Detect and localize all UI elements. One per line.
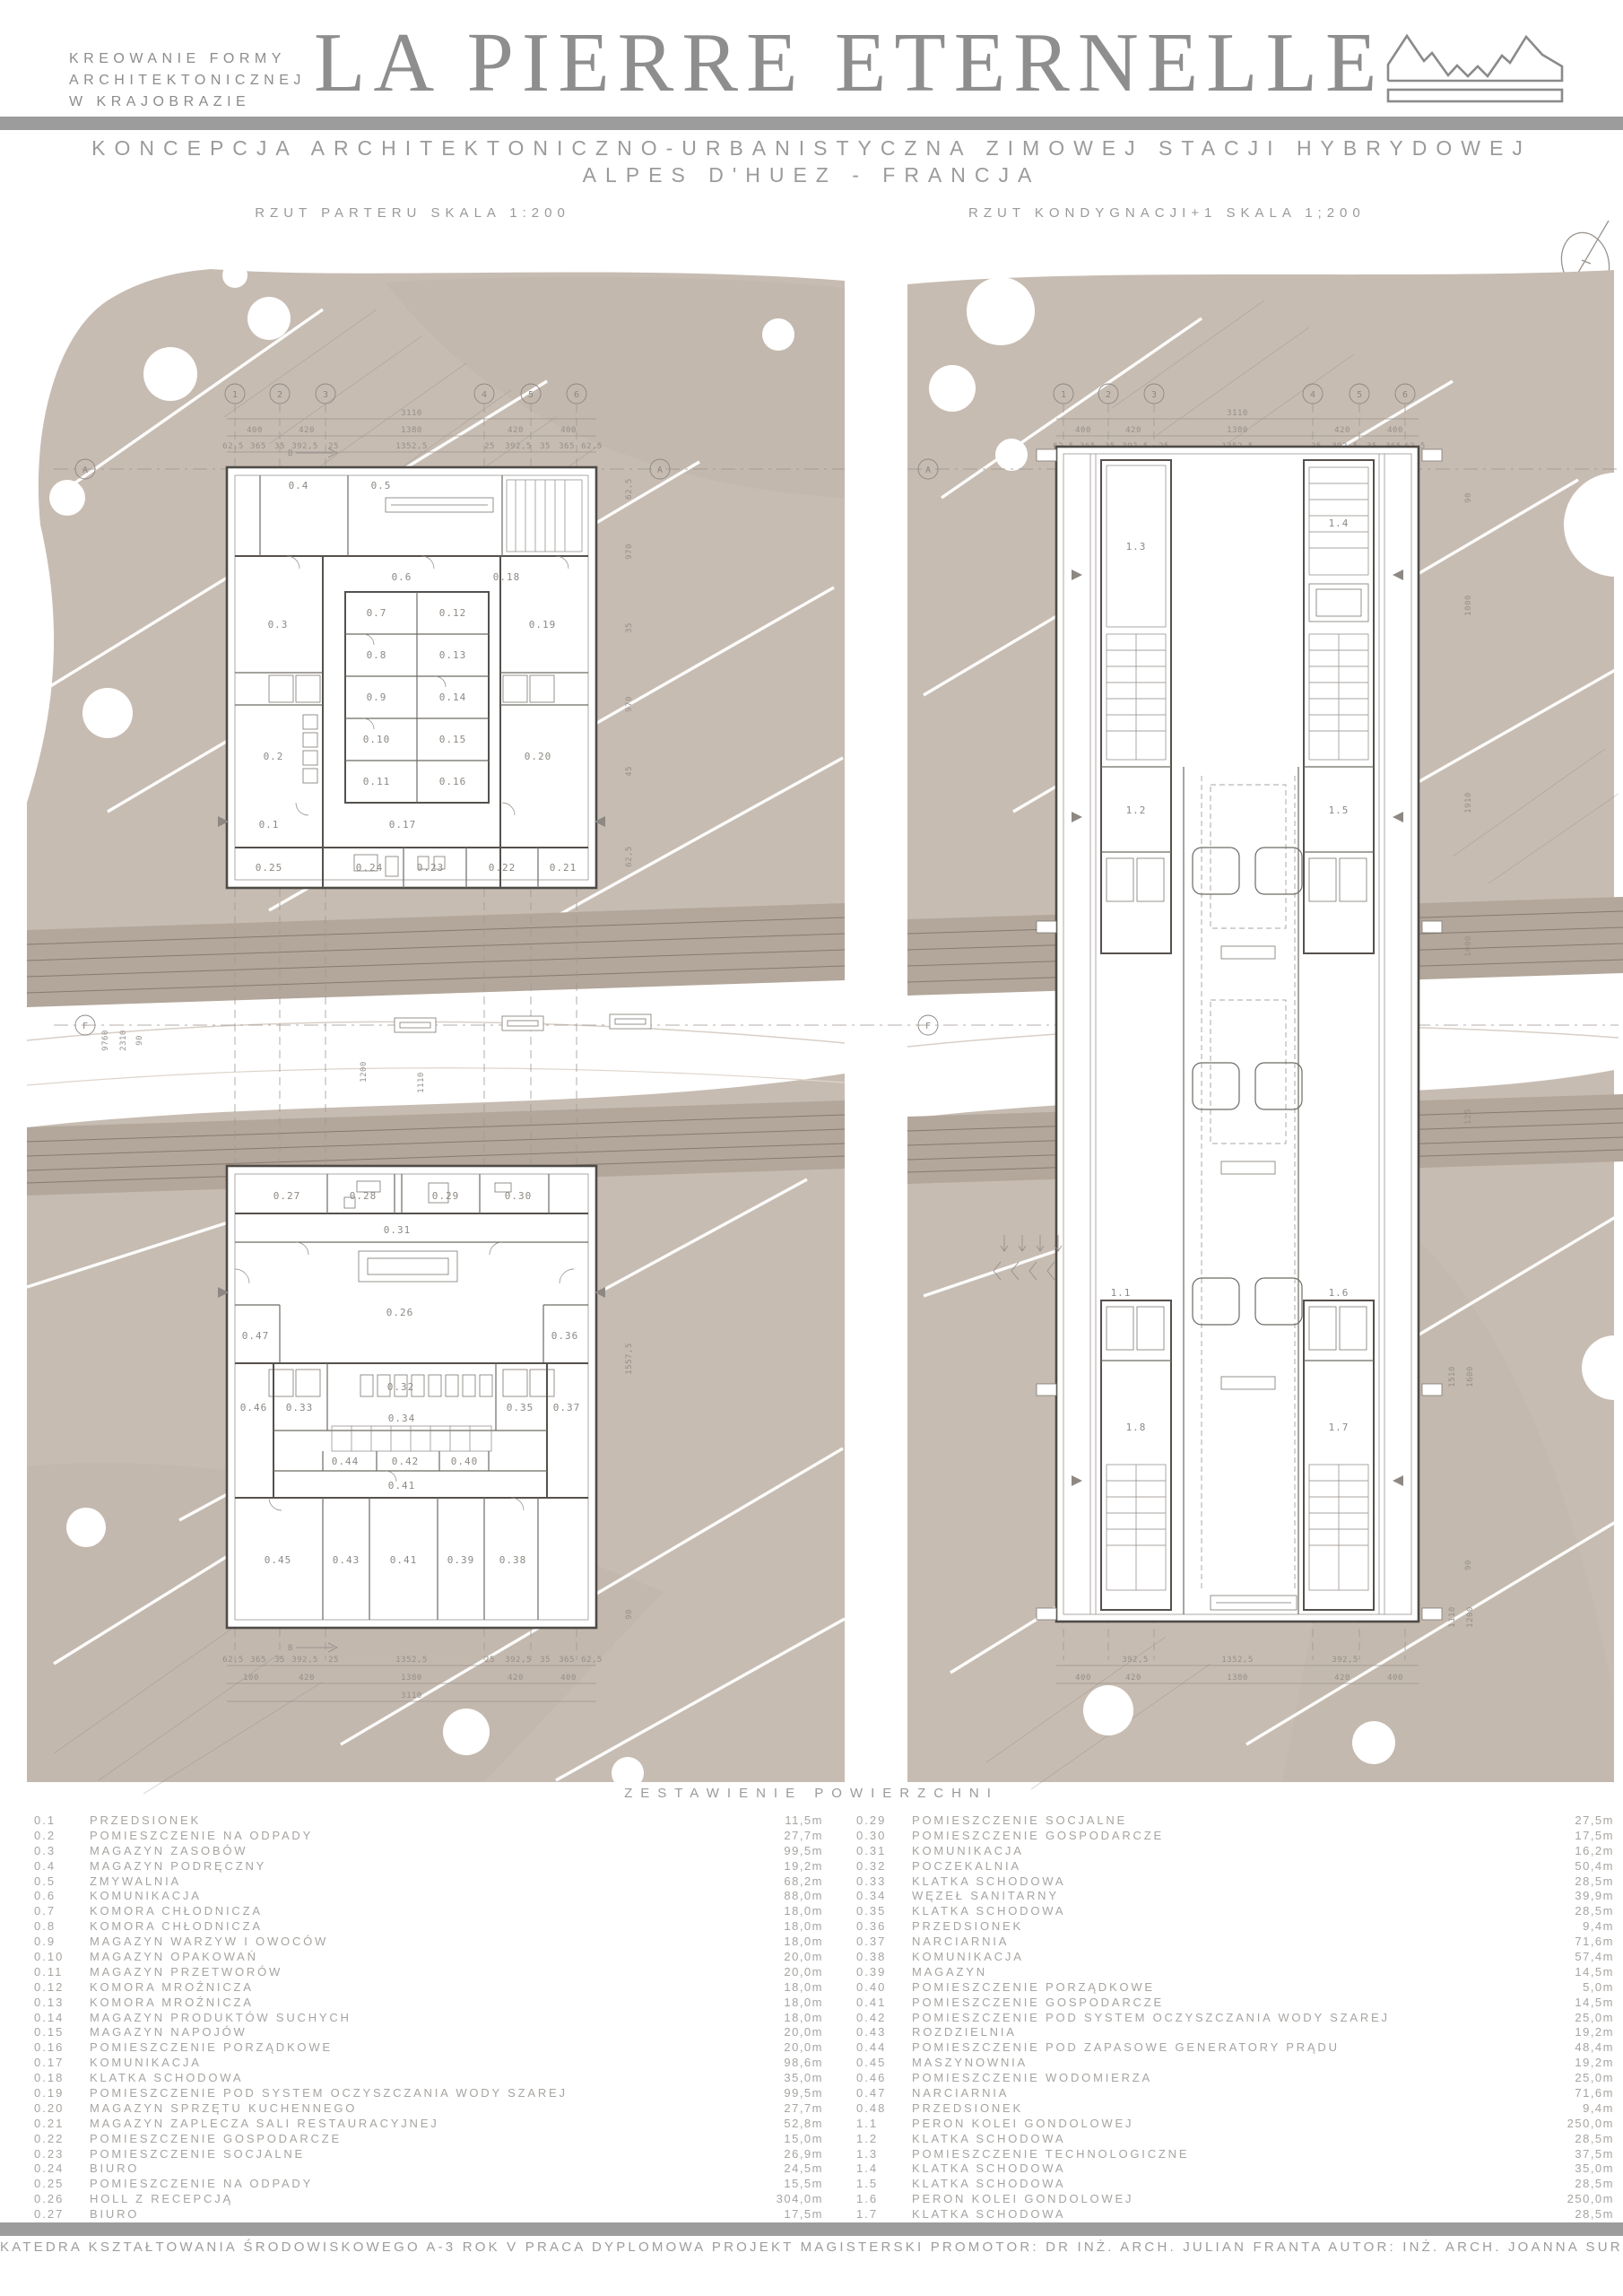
svg-text:125: 125 bbox=[1464, 1109, 1473, 1125]
svg-text:420: 420 bbox=[299, 426, 315, 435]
svg-text:420: 420 bbox=[1334, 1674, 1350, 1683]
room-number: 0.7 bbox=[34, 1904, 90, 1919]
room-number: 1.3 bbox=[856, 2147, 912, 2162]
room-name: MAGAZYN NAPOJÓW bbox=[90, 2025, 742, 2040]
room-name: PERON KOLEI GONDOLOWEJ bbox=[912, 2117, 1533, 2132]
svg-text:392,5: 392,5 bbox=[1122, 1656, 1149, 1665]
room-label: 0.41 bbox=[390, 1554, 418, 1566]
room-number: 1.6 bbox=[856, 2192, 912, 2207]
room-name: POMIESZCZENIE PORZĄDKOWE bbox=[90, 2040, 742, 2056]
room-label: 0.15 bbox=[439, 734, 467, 745]
area-row: 0.29 POMIESZCZENIE SOCJALNE 27,5m bbox=[856, 1813, 1614, 1829]
area-row: 0.40 POMIESZCZENIE PORZĄDKOWE 5,0m bbox=[856, 1980, 1614, 1996]
room-name: KLATKA SCHODOWA bbox=[912, 2132, 1533, 2147]
room-name: KLATKA SCHODOWA bbox=[912, 2207, 1533, 2222]
room-name: ROZDZIELNIA bbox=[912, 2025, 1533, 2040]
room-label: 1.8 bbox=[1126, 1422, 1147, 1433]
room-label: 0.29 bbox=[432, 1190, 460, 1202]
svg-text:35: 35 bbox=[540, 1656, 551, 1665]
svg-text:1510: 1510 bbox=[1448, 1366, 1457, 1387]
svg-text:1352,5: 1352,5 bbox=[1221, 1656, 1254, 1665]
area-row: 0.20 MAGAZYN SPRZĘTU KUCHENNEGO 27,7m bbox=[34, 2101, 823, 2117]
room-number: 0.16 bbox=[34, 2040, 90, 2056]
room-area: 304,0m bbox=[742, 2192, 823, 2207]
room-label: 0.38 bbox=[499, 1554, 527, 1566]
room-label: 0.40 bbox=[451, 1456, 479, 1467]
room-number: 0.24 bbox=[34, 2161, 90, 2177]
room-number: 0.40 bbox=[856, 1980, 912, 1996]
room-name: KOMUNIKACJA bbox=[912, 1950, 1533, 1965]
room-label: 0.35 bbox=[507, 1402, 534, 1413]
svg-text:1000: 1000 bbox=[1464, 595, 1473, 616]
footer-divider-bar bbox=[0, 2222, 1623, 2236]
area-row: 0.32 POCZEKALNIA 50,4m bbox=[856, 1859, 1614, 1874]
left-plan-lower-block: 0.27 0.28 0.29 0.30 0.31 0.26 0.47 0.36 … bbox=[218, 1166, 605, 1628]
area-row: 0.19 POMIESZCZENIE POD SYSTEM OCZYSZCZAN… bbox=[34, 2086, 823, 2101]
room-label: 0.3 bbox=[268, 619, 289, 631]
svg-text:45: 45 bbox=[625, 766, 634, 777]
room-number: 0.27 bbox=[34, 2207, 90, 2222]
room-number: 0.43 bbox=[856, 2025, 912, 2040]
room-area: 17,5m bbox=[742, 2207, 823, 2222]
room-label: 0.43 bbox=[333, 1554, 360, 1566]
room-name: BIURO bbox=[90, 2207, 742, 2222]
room-area: 28,5m bbox=[1533, 1874, 1614, 1890]
svg-text:1110: 1110 bbox=[1448, 1606, 1457, 1628]
svg-text:2: 2 bbox=[277, 390, 282, 400]
room-number: 1.4 bbox=[856, 2161, 912, 2177]
svg-text:35: 35 bbox=[625, 622, 634, 633]
room-area: 18,0m bbox=[742, 1980, 823, 1996]
svg-text:1352,5: 1352,5 bbox=[395, 1656, 428, 1665]
svg-text:1380: 1380 bbox=[1227, 426, 1248, 435]
area-row: 0.8 KOMORA CHŁODNICZA 18,0m bbox=[34, 1919, 823, 1935]
area-row: 0.25 POMIESZCZENIE NA ODPADY 15,5m bbox=[34, 2177, 823, 2192]
room-number: 0.32 bbox=[856, 1859, 912, 1874]
room-number: 0.44 bbox=[856, 2040, 912, 2056]
room-label: 0.1 bbox=[259, 819, 280, 831]
room-name: KOMORA MROŹNICZA bbox=[90, 1996, 742, 2011]
room-number: 0.34 bbox=[856, 1889, 912, 1904]
room-area: 52,8m bbox=[742, 2117, 823, 2132]
svg-text:420: 420 bbox=[1125, 426, 1141, 435]
room-label: 0.14 bbox=[439, 691, 467, 703]
header-divider-bar bbox=[0, 117, 1623, 130]
room-name: HOLL Z RECEPCJĄ bbox=[90, 2192, 742, 2207]
room-name: NARCIARNIA bbox=[912, 2086, 1533, 2101]
room-label: 0.26 bbox=[386, 1307, 414, 1318]
room-label: 0.46 bbox=[240, 1402, 268, 1413]
room-label: 0.32 bbox=[387, 1381, 415, 1393]
room-area: 48,4m bbox=[1533, 2040, 1614, 2056]
svg-text:1200: 1200 bbox=[360, 1061, 369, 1083]
right-plan-label: RZUT KONDYGNACJI+1 SKALA 1;200 bbox=[968, 205, 1363, 221]
room-name: POMIESZCZENIE POD SYSTEM OCZYSZCZANIA WO… bbox=[90, 2086, 742, 2101]
room-area: 39,9m bbox=[1533, 1889, 1614, 1904]
svg-text:6: 6 bbox=[1402, 390, 1408, 400]
svg-text:100: 100 bbox=[243, 1674, 259, 1683]
room-name: KOMUNIKACJA bbox=[912, 1844, 1533, 1859]
tagline-line-3: W KRAJOBRAZIE bbox=[69, 91, 306, 113]
svg-text:400: 400 bbox=[1387, 1674, 1403, 1683]
svg-text:B: B bbox=[288, 449, 293, 458]
room-number: 0.23 bbox=[34, 2147, 90, 2162]
room-label: 1.2 bbox=[1126, 804, 1147, 816]
area-row: 0.4 MAGAZYN PODRĘCZNY 19,2m bbox=[34, 1859, 823, 1874]
svg-text:5: 5 bbox=[1357, 390, 1362, 400]
room-label: 0.8 bbox=[367, 649, 387, 661]
svg-text:5: 5 bbox=[528, 390, 534, 400]
room-label: 0.20 bbox=[525, 751, 552, 762]
area-row: 0.37 NARCIARNIA 71,6m bbox=[856, 1935, 1614, 1950]
room-area: 27,7m bbox=[742, 2101, 823, 2117]
room-label: 1.6 bbox=[1329, 1287, 1350, 1299]
svg-text:62,5: 62,5 bbox=[222, 1656, 244, 1665]
room-name: NARCIARNIA bbox=[912, 1935, 1533, 1950]
room-area: 19,2m bbox=[742, 1859, 823, 1874]
room-label: 1.1 bbox=[1111, 1287, 1132, 1299]
room-area: 18,0m bbox=[742, 1919, 823, 1935]
room-number: 1.7 bbox=[856, 2207, 912, 2222]
room-name: MAGAZYN PRODUKTÓW SUCHYCH bbox=[90, 2011, 742, 2026]
area-row: 1.1 PERON KOLEI GONDOLOWEJ 250,0m bbox=[856, 2117, 1614, 2132]
room-label: 0.7 bbox=[367, 607, 387, 619]
area-row: 0.15 MAGAZYN NAPOJÓW 20,0m bbox=[34, 2025, 823, 2040]
room-name: POMIESZCZENIE SOCJALNE bbox=[90, 2147, 742, 2162]
room-number: 0.29 bbox=[856, 1813, 912, 1829]
room-number: 0.35 bbox=[856, 1904, 912, 1919]
room-name: KLATKA SCHODOWA bbox=[90, 2071, 742, 2086]
areas-column-right: 0.29 POMIESZCZENIE SOCJALNE 27,5m 0.30 P… bbox=[856, 1813, 1614, 2238]
areas-heading: ZESTAWIENIE POWIERZCHNI bbox=[0, 1786, 1623, 1801]
room-name: MAGAZYN PRZETWORÓW bbox=[90, 1965, 742, 1980]
area-row: 0.42 POMIESZCZENIE POD SYSTEM OCZYSZCZAN… bbox=[856, 2011, 1614, 2026]
tagline-line-1: KREOWANIE FORMY bbox=[69, 48, 306, 70]
svg-text:62,5: 62,5 bbox=[581, 442, 603, 451]
area-row: 0.16 POMIESZCZENIE PORZĄDKOWE 20,0m bbox=[34, 2040, 823, 2056]
svg-text:392,5: 392,5 bbox=[1332, 1656, 1358, 1665]
svg-text:1910: 1910 bbox=[1464, 792, 1473, 813]
room-label: 0.45 bbox=[265, 1554, 292, 1566]
room-number: 0.4 bbox=[34, 1859, 90, 1874]
room-number: 0.19 bbox=[34, 2086, 90, 2101]
room-label: 0.12 bbox=[439, 607, 467, 619]
room-name: KOMORA CHŁODNICZA bbox=[90, 1919, 742, 1935]
area-row: 1.5 KLATKA SCHODOWA 28,5m bbox=[856, 2177, 1614, 2192]
room-label: 1.4 bbox=[1329, 517, 1350, 529]
room-area: 88,0m bbox=[742, 1889, 823, 1904]
room-number: 0.14 bbox=[34, 2011, 90, 2026]
area-row: 1.2 KLATKA SCHODOWA 28,5m bbox=[856, 2132, 1614, 2147]
svg-text:392,5: 392,5 bbox=[291, 442, 318, 451]
svg-text:62,5: 62,5 bbox=[222, 442, 244, 451]
room-label: 0.5 bbox=[371, 480, 392, 491]
svg-text:3: 3 bbox=[1151, 390, 1157, 400]
svg-text:B: B bbox=[288, 1644, 293, 1653]
room-area: 28,5m bbox=[1533, 2177, 1614, 2192]
svg-text:1600: 1600 bbox=[1466, 1366, 1475, 1387]
area-row: 0.14 MAGAZYN PRODUKTÓW SUCHYCH 18,0m bbox=[34, 2011, 823, 2026]
area-row: 0.36 PRZEDSIONEK 9,4m bbox=[856, 1919, 1614, 1935]
area-row: 0.1 PRZEDSIONEK 11,5m bbox=[34, 1813, 823, 1829]
room-label: 0.36 bbox=[551, 1330, 579, 1342]
room-area: 27,5m bbox=[1533, 1813, 1614, 1829]
area-row: 0.11 MAGAZYN PRZETWORÓW 20,0m bbox=[34, 1965, 823, 1980]
room-number: 0.10 bbox=[34, 1950, 90, 1965]
area-row: 0.38 KOMUNIKACJA 57,4m bbox=[856, 1950, 1614, 1965]
room-label: 0.42 bbox=[392, 1456, 420, 1467]
room-area: 14,5m bbox=[1533, 1996, 1614, 2011]
room-area: 28,5m bbox=[1533, 2207, 1614, 2222]
svg-text:62,5: 62,5 bbox=[625, 846, 634, 867]
svg-text:2: 2 bbox=[1106, 390, 1111, 400]
room-number: 0.6 bbox=[34, 1889, 90, 1904]
area-row: 0.33 KLATKA SCHODOWA 28,5m bbox=[856, 1874, 1614, 1890]
room-label: 0.16 bbox=[439, 776, 467, 787]
svg-text:3110: 3110 bbox=[401, 409, 422, 418]
footer-credits: KATEDRA KSZTAŁTOWANIA ŚRODOWISKOWEGO A-3… bbox=[0, 2239, 1623, 2255]
room-area: 11,5m bbox=[742, 1813, 823, 1829]
room-area: 19,2m bbox=[1533, 2025, 1614, 2040]
svg-text:1: 1 bbox=[1061, 390, 1066, 400]
area-row: 0.46 POMIESZCZENIE WODOMIERZA 25,0m bbox=[856, 2071, 1614, 2086]
area-row: 0.9 MAGAZYN WARZYW I OWOCÓW 18,0m bbox=[34, 1935, 823, 1950]
svg-text:A: A bbox=[657, 465, 663, 475]
area-row: 0.47 NARCIARNIA 71,6m bbox=[856, 2086, 1614, 2101]
room-label: 0.44 bbox=[332, 1456, 360, 1467]
room-label: 0.11 bbox=[363, 776, 391, 787]
room-name: POMIESZCZENIE GOSPODARCZE bbox=[912, 1829, 1533, 1844]
room-area: 28,5m bbox=[1533, 2132, 1614, 2147]
room-area: 68,2m bbox=[742, 1874, 823, 1890]
area-row: 1.6 PERON KOLEI GONDOLOWEJ 250,0m bbox=[856, 2192, 1614, 2207]
subtitle-line-1: KONCEPCJA ARCHITEKTONICZNO-URBANISTYCZNA… bbox=[0, 136, 1623, 161]
room-label: 0.21 bbox=[550, 862, 577, 874]
svg-text:420: 420 bbox=[1334, 426, 1350, 435]
room-label: 0.6 bbox=[392, 571, 412, 583]
svg-text:1557,5: 1557,5 bbox=[625, 1343, 634, 1375]
mountain-ridge-logo-icon bbox=[1383, 25, 1580, 115]
area-row: 0.13 KOMORA MROŹNICZA 18,0m bbox=[34, 1996, 823, 2011]
area-row: 0.31 KOMUNIKACJA 16,2m bbox=[856, 1844, 1614, 1859]
room-name: KLATKA SCHODOWA bbox=[912, 2161, 1533, 2177]
room-label: 0.41 bbox=[388, 1480, 416, 1492]
room-area: 50,4m bbox=[1533, 1859, 1614, 1874]
areas-column-left: 0.1 PRZEDSIONEK 11,5m 0.2 POMIESZCZENIE … bbox=[34, 1813, 823, 2238]
svg-text:35: 35 bbox=[540, 442, 551, 451]
svg-text:400: 400 bbox=[560, 1674, 577, 1683]
room-number: 0.18 bbox=[34, 2071, 90, 2086]
room-number: 0.9 bbox=[34, 1935, 90, 1950]
area-row: 0.21 MAGAZYN ZAPLECZA SALI RESTAURACYJNE… bbox=[34, 2117, 823, 2132]
room-label: 0.39 bbox=[447, 1554, 475, 1566]
svg-text:3110: 3110 bbox=[1227, 409, 1248, 418]
room-name: KOMORA CHŁODNICZA bbox=[90, 1904, 742, 1919]
room-number: 0.37 bbox=[856, 1935, 912, 1950]
svg-text:1380: 1380 bbox=[401, 1674, 422, 1683]
svg-text:420: 420 bbox=[508, 1674, 524, 1683]
room-number: 0.20 bbox=[34, 2101, 90, 2117]
room-area: 9,4m bbox=[1533, 1919, 1614, 1935]
room-number: 0.30 bbox=[856, 1829, 912, 1844]
room-label: 0.28 bbox=[350, 1190, 378, 1202]
room-name: ZMYWALNIA bbox=[90, 1874, 742, 1890]
room-number: 0.36 bbox=[856, 1919, 912, 1935]
room-area: 20,0m bbox=[742, 1950, 823, 1965]
room-label: 0.4 bbox=[289, 480, 309, 491]
room-name: BIURO bbox=[90, 2161, 742, 2177]
svg-text:90: 90 bbox=[1464, 492, 1473, 503]
room-area: 19,2m bbox=[1533, 2056, 1614, 2071]
room-area: 16,2m bbox=[1533, 1844, 1614, 1859]
room-number: 0.21 bbox=[34, 2117, 90, 2132]
svg-text:25: 25 bbox=[484, 442, 495, 451]
svg-text:9760: 9760 bbox=[101, 1030, 110, 1051]
area-row: 0.43 ROZDZIELNIA 19,2m bbox=[856, 2025, 1614, 2040]
room-number: 0.25 bbox=[34, 2177, 90, 2192]
area-row: 0.23 POMIESZCZENIE SOCJALNE 26,9m bbox=[34, 2147, 823, 2162]
svg-text:400: 400 bbox=[1387, 426, 1403, 435]
room-label: 0.9 bbox=[367, 691, 387, 703]
svg-text:420: 420 bbox=[1125, 1674, 1141, 1683]
tagline: KREOWANIE FORMY ARCHITEKTONICZNEJ W KRAJ… bbox=[69, 48, 306, 113]
room-number: 1.5 bbox=[856, 2177, 912, 2192]
room-name: MAGAZYN OPAKOWAŃ bbox=[90, 1950, 742, 1965]
room-number: 1.2 bbox=[856, 2132, 912, 2147]
room-area: 26,9m bbox=[742, 2147, 823, 2162]
room-area: 27,7m bbox=[742, 1829, 823, 1844]
room-area: 18,0m bbox=[742, 1935, 823, 1950]
svg-text:392,5: 392,5 bbox=[291, 1656, 318, 1665]
room-area: 24,5m bbox=[742, 2161, 823, 2177]
room-area: 250,0m bbox=[1533, 2192, 1614, 2207]
site-plan-drawing: 12 34 56 AA F 3110 400420 1380420 400 62… bbox=[0, 229, 1623, 1794]
area-row: 1.3 POMIESZCZENIE TECHNOLOGICZNE 37,5m bbox=[856, 2147, 1614, 2162]
svg-text:1352,5: 1352,5 bbox=[395, 442, 428, 451]
room-area: 14,5m bbox=[1533, 1965, 1614, 1980]
room-name: POCZEKALNIA bbox=[912, 1859, 1533, 1874]
svg-text:F: F bbox=[925, 1022, 931, 1031]
area-row: 0.26 HOLL Z RECEPCJĄ 304,0m bbox=[34, 2192, 823, 2207]
area-row: 0.18 KLATKA SCHODOWA 35,0m bbox=[34, 2071, 823, 2086]
room-area: 71,6m bbox=[1533, 2086, 1614, 2101]
room-number: 0.5 bbox=[34, 1874, 90, 1890]
room-number: 0.17 bbox=[34, 2056, 90, 2071]
room-name: POMIESZCZENIE GOSPODARCZE bbox=[90, 2132, 742, 2147]
room-number: 0.45 bbox=[856, 2056, 912, 2071]
room-area: 99,5m bbox=[742, 2086, 823, 2101]
svg-text:420: 420 bbox=[299, 1674, 315, 1683]
room-name: KOMORA MROŹNICZA bbox=[90, 1980, 742, 1996]
svg-text:420: 420 bbox=[508, 426, 524, 435]
room-name: MAGAZYN WARZYW I OWOCÓW bbox=[90, 1935, 742, 1950]
room-name: WĘZEŁ SANITARNY bbox=[912, 1889, 1533, 1904]
room-name: MAGAZYN PODRĘCZNY bbox=[90, 1859, 742, 1874]
room-number: 0.11 bbox=[34, 1965, 90, 1980]
tagline-line-2: ARCHITEKTONICZNEJ bbox=[69, 70, 306, 91]
room-number: 0.8 bbox=[34, 1919, 90, 1935]
room-label: 0.30 bbox=[505, 1190, 533, 1202]
area-row: 0.27 BIURO 17,5m bbox=[34, 2207, 823, 2222]
area-row: 0.22 POMIESZCZENIE GOSPODARCZE 15,0m bbox=[34, 2132, 823, 2147]
room-name: KLATKA SCHODOWA bbox=[912, 1874, 1533, 1890]
subtitle-line-2: ALPES D'HUEZ - FRANCJA bbox=[0, 163, 1623, 187]
room-label: 0.17 bbox=[389, 819, 417, 831]
svg-text:1200: 1200 bbox=[1466, 1606, 1475, 1628]
room-number: 0.2 bbox=[34, 1829, 90, 1844]
room-label: 0.22 bbox=[489, 862, 516, 874]
area-row: 0.10 MAGAZYN OPAKOWAŃ 20,0m bbox=[34, 1950, 823, 1965]
svg-text:90: 90 bbox=[1464, 1560, 1473, 1570]
room-area: 25,0m bbox=[1533, 2011, 1614, 2026]
room-number: 1.1 bbox=[856, 2117, 912, 2132]
room-area: 18,0m bbox=[742, 1996, 823, 2011]
area-row: 1.7 KLATKA SCHODOWA 28,5m bbox=[856, 2207, 1614, 2222]
room-name: POMIESZCZENIE WODOMIERZA bbox=[912, 2071, 1533, 2086]
room-number: 0.12 bbox=[34, 1980, 90, 1996]
room-number: 0.39 bbox=[856, 1965, 912, 1980]
area-row: 0.41 POMIESZCZENIE GOSPODARCZE 14,5m bbox=[856, 1996, 1614, 2011]
room-label: 1.3 bbox=[1126, 541, 1147, 552]
room-name: MAGAZYN SPRZĘTU KUCHENNEGO bbox=[90, 2101, 742, 2117]
room-name: POMIESZCZENIE TECHNOLOGICZNE bbox=[912, 2147, 1533, 2162]
area-row: 0.2 POMIESZCZENIE NA ODPADY 27,7m bbox=[34, 1829, 823, 1844]
svg-text:25: 25 bbox=[328, 442, 339, 451]
room-name: PRZEDSIONEK bbox=[912, 1919, 1533, 1935]
room-label: 0.47 bbox=[242, 1330, 270, 1342]
svg-text:365: 365 bbox=[559, 442, 575, 451]
svg-text:365: 365 bbox=[559, 1656, 575, 1665]
area-row: 0.39 MAGAZYN 14,5m bbox=[856, 1965, 1614, 1980]
svg-text:90: 90 bbox=[625, 1609, 634, 1620]
svg-text:970: 970 bbox=[625, 544, 634, 560]
svg-text:A: A bbox=[925, 465, 931, 475]
room-label: 0.2 bbox=[264, 751, 284, 762]
svg-text:400: 400 bbox=[247, 426, 263, 435]
room-area: 20,0m bbox=[742, 2025, 823, 2040]
svg-text:1000: 1000 bbox=[1464, 935, 1473, 957]
svg-text:1380: 1380 bbox=[401, 426, 422, 435]
area-row: 0.17 KOMUNIKACJA 98,6m bbox=[34, 2056, 823, 2071]
area-row: 0.5 ZMYWALNIA 68,2m bbox=[34, 1874, 823, 1890]
room-label: 0.18 bbox=[493, 571, 521, 583]
svg-text:3: 3 bbox=[323, 390, 328, 400]
room-number: 0.22 bbox=[34, 2132, 90, 2147]
room-label: 0.19 bbox=[529, 619, 557, 631]
room-label: 0.10 bbox=[363, 734, 391, 745]
area-row: 0.48 PRZEDSIONEK 9,4m bbox=[856, 2101, 1614, 2117]
svg-text:365: 365 bbox=[250, 442, 266, 451]
room-name: PRZEDSIONEK bbox=[90, 1813, 742, 1829]
room-area: 5,0m bbox=[1533, 1980, 1614, 1996]
area-row: 0.3 MAGAZYN ZASOBÓW 99,5m bbox=[34, 1844, 823, 1859]
room-name: POMIESZCZENIE NA ODPADY bbox=[90, 1829, 742, 1844]
room-area: 15,0m bbox=[742, 2132, 823, 2147]
svg-text:F: F bbox=[82, 1022, 88, 1031]
area-row: 0.44 POMIESZCZENIE POD ZAPASOWE GENERATO… bbox=[856, 2040, 1614, 2056]
svg-text:3110: 3110 bbox=[401, 1692, 422, 1700]
room-name: PRZEDSIONEK bbox=[912, 2101, 1533, 2117]
room-name: KOMUNIKACJA bbox=[90, 1889, 742, 1904]
poster: KREOWANIE FORMY ARCHITEKTONICZNEJ W KRAJ… bbox=[0, 0, 1623, 2296]
room-name: POMIESZCZENIE POD ZAPASOWE GENERATORY PR… bbox=[912, 2040, 1533, 2056]
room-name: POMIESZCZENIE POD SYSTEM OCZYSZCZANIA WO… bbox=[912, 2011, 1533, 2026]
room-area: 71,6m bbox=[1533, 1935, 1614, 1950]
room-label: 0.23 bbox=[417, 862, 445, 874]
room-number: 0.48 bbox=[856, 2101, 912, 2117]
svg-text:62,5: 62,5 bbox=[581, 1656, 603, 1665]
room-label: 0.27 bbox=[273, 1190, 301, 1202]
